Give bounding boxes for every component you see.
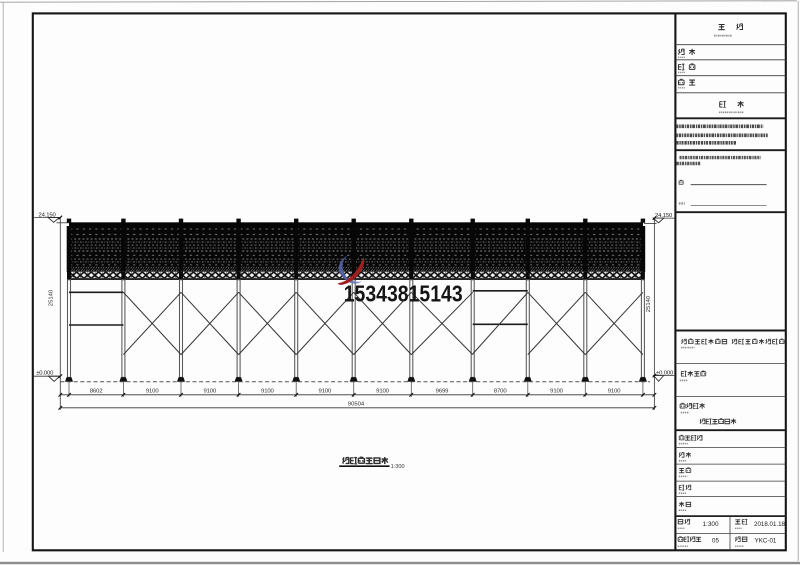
svg-text:9100: 9100 xyxy=(146,388,160,394)
svg-text:25140: 25140 xyxy=(48,289,54,306)
svg-text:9100: 9100 xyxy=(261,388,275,394)
svg-text:15343815143: 15343815143 xyxy=(344,280,463,306)
svg-text:YKC-01: YKC-01 xyxy=(755,538,777,545)
svg-text:9100: 9100 xyxy=(319,388,333,394)
svg-text:9100: 9100 xyxy=(608,388,622,394)
svg-text:8700: 8700 xyxy=(494,388,508,394)
svg-text:±0.000: ±0.000 xyxy=(36,370,54,376)
svg-text:9699: 9699 xyxy=(436,388,449,394)
svg-text:8602: 8602 xyxy=(90,388,103,394)
svg-text:2018.01.18: 2018.01.18 xyxy=(754,521,786,528)
svg-text:25140: 25140 xyxy=(646,295,652,312)
svg-text:1:300: 1:300 xyxy=(703,521,719,528)
svg-text:05: 05 xyxy=(712,538,719,545)
svg-text:9100: 9100 xyxy=(550,388,564,394)
svg-text:90504: 90504 xyxy=(348,402,365,408)
svg-text:1:300: 1:300 xyxy=(391,464,405,470)
svg-text:9100: 9100 xyxy=(203,388,217,394)
svg-text:9100: 9100 xyxy=(376,388,390,394)
